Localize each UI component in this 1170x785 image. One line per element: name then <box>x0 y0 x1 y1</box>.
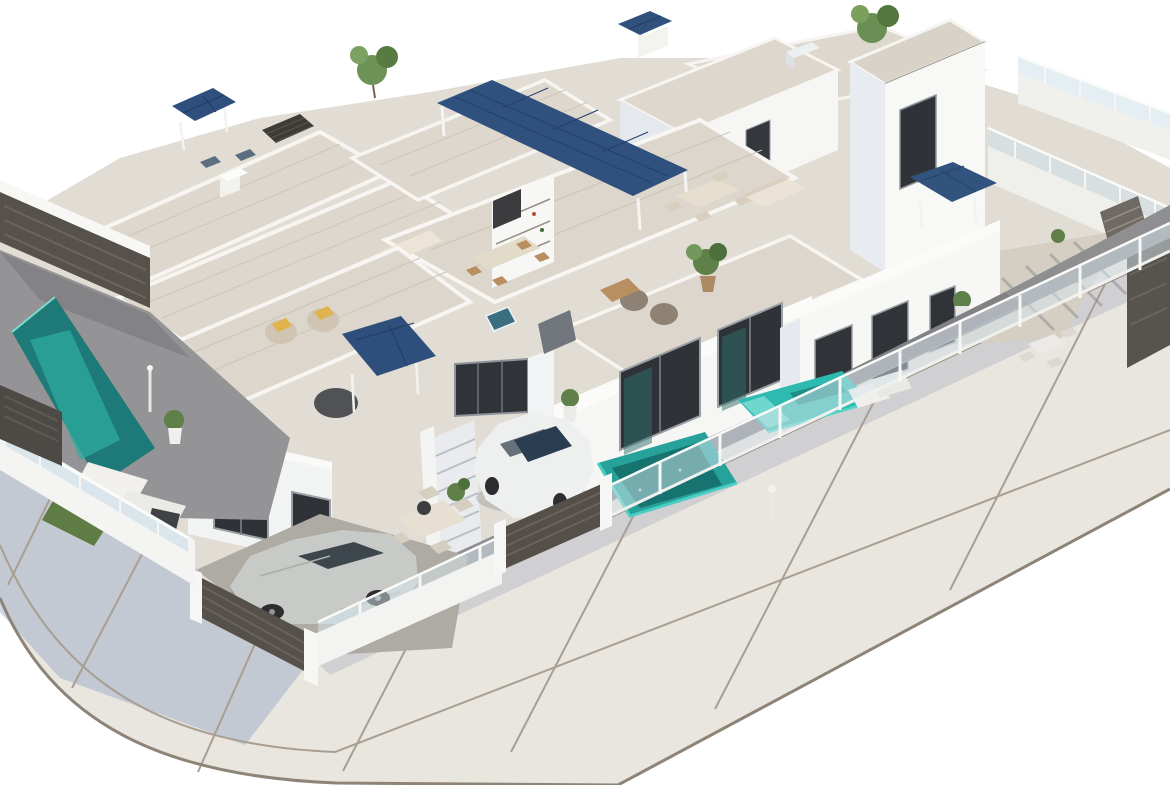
patio-lamp-head <box>768 485 776 493</box>
poolside-plant <box>561 389 579 407</box>
outdoor-shower-head <box>147 365 153 371</box>
right-terrace-plant <box>1051 229 1065 243</box>
villa4-window-1-glint <box>624 367 652 455</box>
villa4-plant-2 <box>709 243 727 261</box>
villa4-plant-3 <box>686 244 702 260</box>
center-gate-post-1 <box>494 519 506 577</box>
villa4-wicker-2 <box>650 303 678 325</box>
tree-center-3 <box>350 46 368 64</box>
round-table <box>314 388 358 418</box>
tower-wall-left <box>850 62 885 272</box>
white-car-wheel-1 <box>485 477 499 495</box>
shelf-item-1 <box>532 212 536 216</box>
villa4-window-2-glint <box>722 327 746 411</box>
center-gate-post-2 <box>600 473 612 531</box>
tree-center-2 <box>376 46 398 68</box>
left-plant-pot <box>168 428 182 444</box>
left-gate-post-2 <box>304 628 318 686</box>
pergola-b-post-3 <box>442 106 444 136</box>
left-plant <box>164 410 184 430</box>
scene-svg <box>0 0 1170 785</box>
corner-dark-pot <box>417 501 431 515</box>
corner-plant-2 <box>458 478 470 490</box>
villa4-porch-window <box>455 359 528 416</box>
tree-back-right-2 <box>877 5 899 27</box>
pergola-b-post-1 <box>638 198 640 230</box>
villa-development-aerial-render <box>0 0 1170 785</box>
tree-back-right-3 <box>851 5 869 23</box>
shelf-item-2 <box>540 228 544 232</box>
